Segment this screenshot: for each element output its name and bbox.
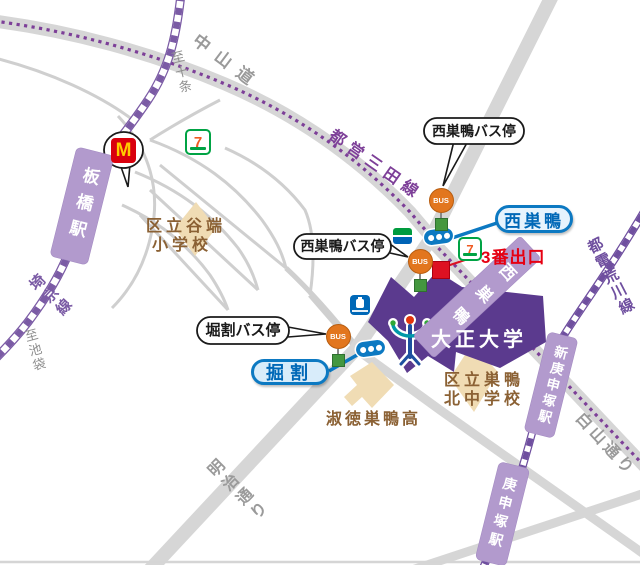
bus-stop-icon: BUS xyxy=(429,188,453,231)
bus-sign: BUS xyxy=(326,324,351,349)
capsule-horiwari-label: 掘割 xyxy=(266,359,314,385)
bus-sign: BUS xyxy=(408,249,433,274)
map-geometry xyxy=(0,0,640,565)
bus-stop-icon: BUS xyxy=(408,249,432,292)
shukutoku-sugamo-label: 淑徳巣鴨高 xyxy=(326,405,421,429)
lawson-icon xyxy=(350,295,370,315)
bus-stop-icon: BUS xyxy=(326,324,350,367)
seven-eleven-icon: 7 xyxy=(185,129,211,155)
major-roads xyxy=(0,0,640,565)
family-mart-icon xyxy=(393,228,412,244)
minor-streets xyxy=(0,58,313,310)
exit3-label: 3番出口 xyxy=(481,243,545,268)
taisho-university-label: 大正大学 xyxy=(431,323,527,352)
area-map: 板橋駅 西巣鴨 新庚申塚駅 庚申塚駅 中山道 白山通り 明治通り 都営三田線 埼… xyxy=(0,0,640,565)
yabata-elementary-line2: 小学校 xyxy=(152,231,212,255)
bus-sign: BUS xyxy=(429,188,454,213)
exit3-marker xyxy=(432,261,450,279)
seven-eleven-icon: 7 xyxy=(458,237,482,261)
callout-nishisugamo-bus-top: 西巣鴨バス停 xyxy=(424,118,524,144)
capsule-nishisugamo-label: 西巣鴨 xyxy=(504,207,564,232)
callout-horiwari-bus: 堀割バス停 xyxy=(197,317,289,344)
nishisugamo-leader-line xyxy=(452,223,497,238)
capsule-nishisugamo: 西巣鴨 xyxy=(495,205,573,233)
capsule-horiwari: 掘割 xyxy=(251,359,329,385)
sugamo-kita-line2: 北中学校 xyxy=(444,385,524,409)
callout-nishisugamo-bus-left: 西巣鴨バス停 xyxy=(294,234,391,259)
mcdonalds-icon: M xyxy=(111,138,136,163)
